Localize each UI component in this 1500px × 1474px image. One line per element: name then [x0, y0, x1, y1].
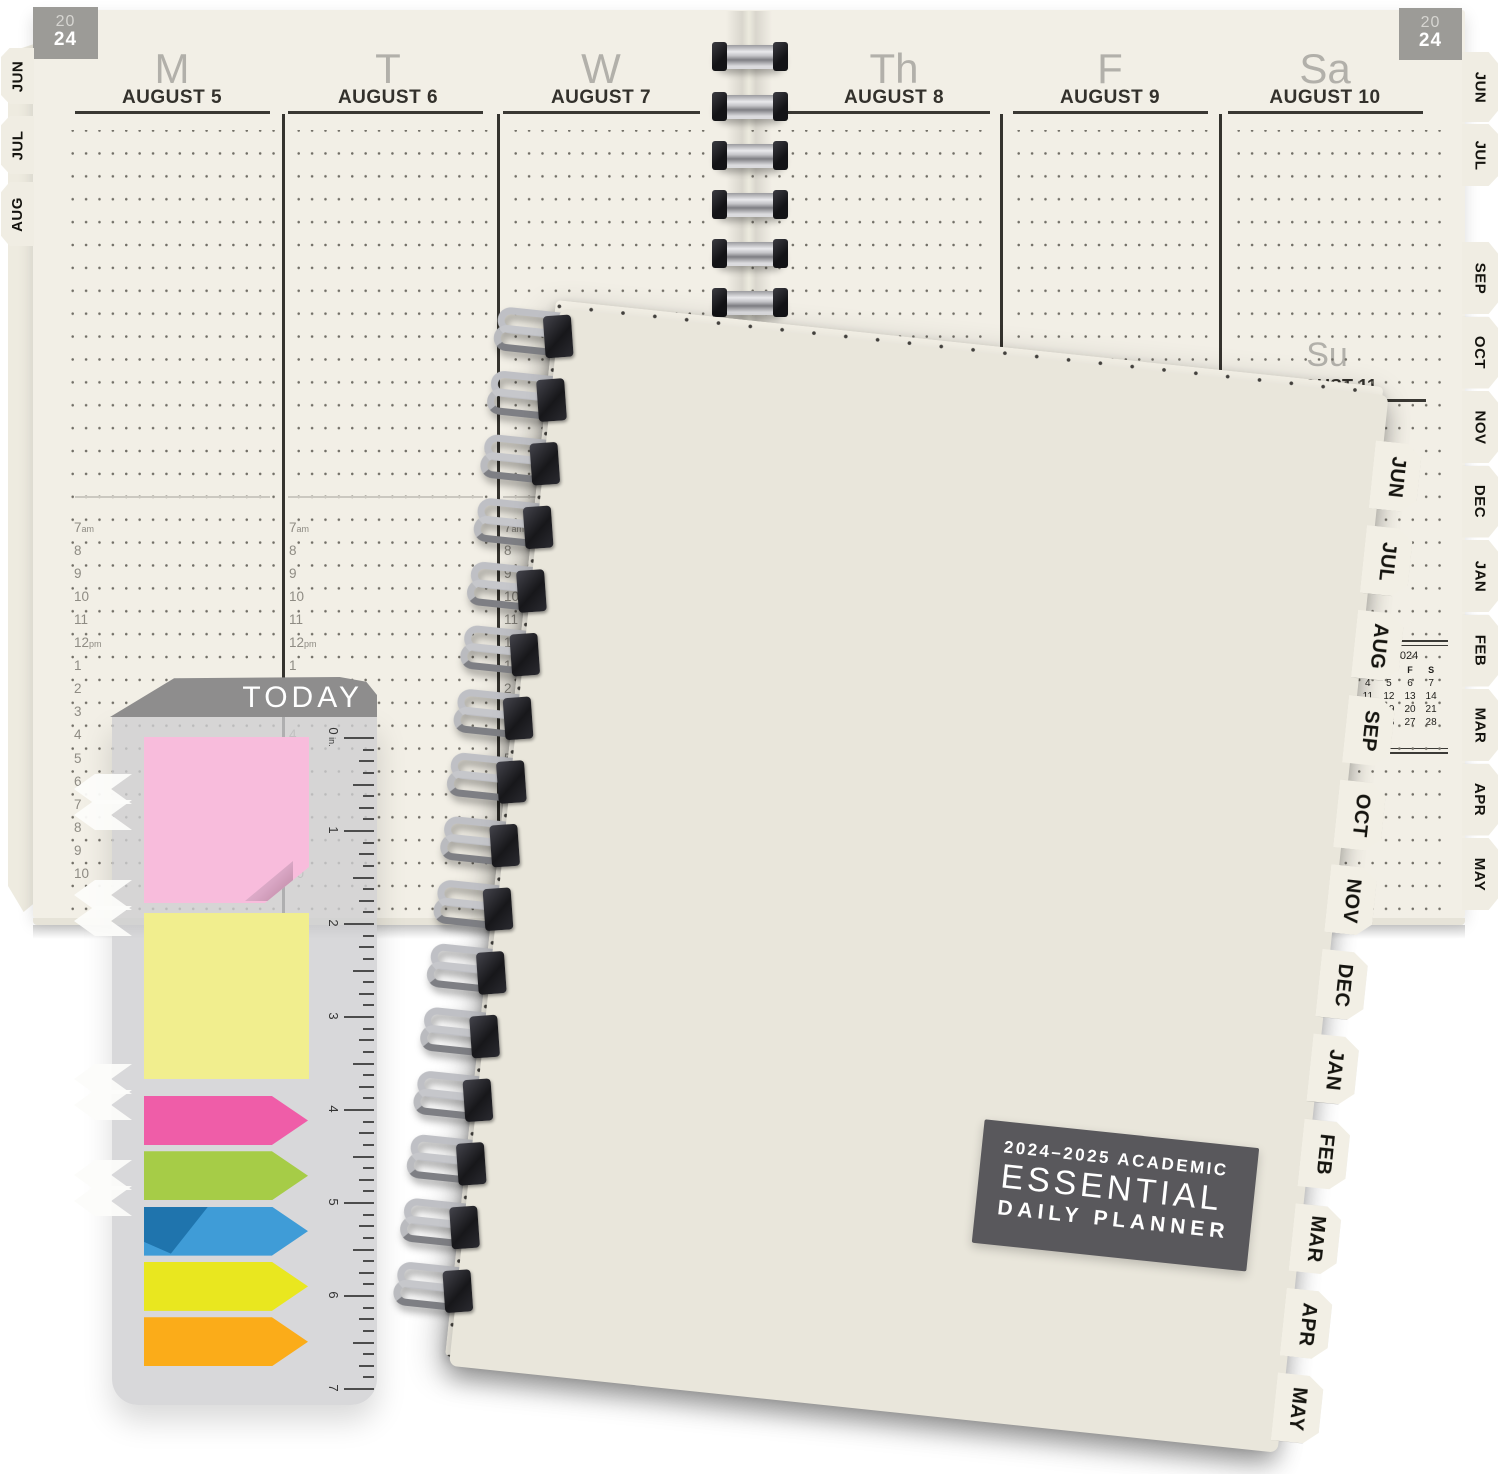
- day-letter: T: [328, 46, 448, 92]
- pack-banner: TODAY: [110, 677, 377, 717]
- notebook-tab-sep: SEP: [1342, 695, 1396, 768]
- month-tab-jul: JUL: [1462, 124, 1498, 186]
- year-tab-right: 20 24: [1399, 8, 1462, 60]
- time-label: 3: [74, 704, 114, 720]
- banner-label: TODAY: [242, 681, 363, 715]
- ruler-tick: [363, 888, 374, 890]
- ruler-tick: [359, 1132, 374, 1134]
- time-label: 9: [289, 566, 329, 582]
- ruler-tick: [359, 1039, 374, 1041]
- year-top-digits: 20: [1399, 14, 1462, 31]
- ruler-tick: [353, 1249, 374, 1251]
- day-header-underline: [288, 111, 483, 114]
- day-letter: M: [112, 46, 232, 92]
- month-tab-jun: JUN: [1462, 52, 1498, 122]
- ruler-tick: [363, 1028, 374, 1030]
- ruler-number: 1: [325, 808, 341, 852]
- time-label: 12pm: [289, 635, 329, 651]
- ruler-tick: [353, 1063, 374, 1065]
- time-label: 10: [74, 589, 114, 605]
- ruler-tick: [363, 1051, 374, 1053]
- ruler-tick: [344, 923, 374, 925]
- binding-coil-clamp: [536, 378, 567, 422]
- time-label: 4: [74, 727, 114, 743]
- time-label: 7am: [289, 520, 329, 536]
- time-label: 7am: [74, 520, 114, 536]
- binding-coil-clamp: [449, 1206, 480, 1250]
- ruler-number: 6: [325, 1273, 341, 1317]
- ruler-tick: [363, 772, 374, 774]
- ruler-tick: [363, 981, 374, 983]
- month-tab-nov: NOV: [1462, 391, 1498, 463]
- ruler-tick: [363, 1353, 374, 1355]
- ruler-tick: [363, 1004, 374, 1006]
- notebook-tab-dec: DEC: [1315, 949, 1369, 1022]
- schedule-divider: [288, 496, 483, 498]
- ruler-tick: [363, 1074, 374, 1076]
- ruler-tick: [344, 737, 374, 739]
- day-header-underline: [503, 111, 700, 114]
- ruler-tick: [359, 900, 374, 902]
- time-label: 12pm: [74, 635, 114, 651]
- notebook-tab-mar: MAR: [1289, 1203, 1343, 1276]
- ruler-number: 2: [325, 901, 341, 945]
- day-date: AUGUST 6: [298, 87, 478, 109]
- month-tab-oct: OCT: [1462, 317, 1498, 389]
- day-date: AUGUST 10: [1235, 87, 1415, 109]
- ruler-tick: [363, 1144, 374, 1146]
- time-label: 1: [74, 658, 114, 674]
- spiral-coil: [715, 144, 785, 168]
- ruler-number: 4: [325, 1087, 341, 1131]
- ruler-tick: [363, 1330, 374, 1332]
- ruler-number: 3: [325, 994, 341, 1038]
- time-label: 1: [289, 658, 329, 674]
- ruler-tick: [359, 1086, 374, 1088]
- day-header-underline: [1013, 111, 1208, 114]
- binding-coil-clamp: [456, 1142, 487, 1186]
- notebook-tab-feb: FEB: [1297, 1118, 1351, 1191]
- day-header-underline: [75, 111, 270, 114]
- time-label: 8: [74, 543, 114, 559]
- flag-corner-fold: [144, 1207, 208, 1256]
- day-letter: W: [541, 46, 661, 92]
- notebook-tab-apr: APR: [1280, 1288, 1334, 1361]
- ruler-tick: [359, 807, 374, 809]
- time-label: 8: [289, 543, 329, 559]
- month-tab-mar: MAR: [1462, 689, 1498, 761]
- ruler-tick: [359, 1179, 374, 1181]
- ruler-number: 5: [325, 1180, 341, 1224]
- day-date: AUGUST 9: [1020, 87, 1200, 109]
- notebook-tab-aug: AUG: [1351, 610, 1405, 683]
- ruler-tick: [359, 1318, 374, 1320]
- day-date: AUGUST 5: [82, 87, 262, 109]
- day-letter: Sa: [1265, 46, 1385, 92]
- ruler-tick: [363, 1190, 374, 1192]
- ruler-tick: [363, 1376, 374, 1378]
- binding-coil-clamp: [523, 505, 554, 549]
- planner-product-photo: 20 24 20 24 Su AUGUST 11 SEPTEMBER 2024 …: [0, 0, 1500, 1474]
- month-tab-jun: JUN: [1, 48, 34, 104]
- ruler-tick: [344, 830, 374, 832]
- ruler-tick: [344, 1388, 374, 1390]
- spiral-coil: [715, 95, 785, 119]
- notebook-tab-jul: JUL: [1360, 525, 1414, 598]
- spiral-coil: [715, 193, 785, 217]
- spiral-coil: [715, 291, 785, 315]
- ruler-tick: [363, 1307, 374, 1309]
- binding-coil-clamp: [469, 1015, 500, 1059]
- time-label: 10: [74, 866, 114, 882]
- binding-coil-clamp: [509, 633, 540, 677]
- ruler-tick: [359, 946, 374, 948]
- binding-coil-clamp: [476, 951, 507, 995]
- ruler-tick: [359, 1365, 374, 1367]
- day-header-underline: [1228, 111, 1423, 114]
- month-tab-jan: JAN: [1462, 540, 1498, 612]
- ruler-tick: [353, 877, 374, 879]
- ruler-tick: [363, 911, 374, 913]
- ruler-tick: [363, 749, 374, 751]
- left-page-stack-edge: [8, 44, 34, 912]
- binding-coil-clamp: [489, 824, 520, 868]
- ruler-tick: [363, 795, 374, 797]
- binding-coil-clamp: [516, 569, 547, 613]
- ruler-number: 7: [325, 1366, 341, 1410]
- cover-label: 2024–2025 ACADEMIC ESSENTIAL DAILY PLANN…: [972, 1119, 1259, 1271]
- ruler-tick: [359, 760, 374, 762]
- ruler-tick: [363, 1167, 374, 1169]
- notebook-tab-oct: OCT: [1333, 779, 1387, 852]
- time-label: 9: [74, 566, 114, 582]
- month-tab-dec: DEC: [1462, 466, 1498, 538]
- ruler-tick: [363, 1283, 374, 1285]
- binding-coil-clamp: [503, 696, 534, 740]
- ruler-tick: [363, 1097, 374, 1099]
- time-label: 2: [74, 681, 114, 697]
- sticky-note-pink: [144, 737, 309, 903]
- ruler-tick: [344, 1109, 374, 1111]
- ruler-tick: [363, 935, 374, 937]
- day-letter: F: [1050, 46, 1170, 92]
- ruler-tick: [359, 853, 374, 855]
- year-top-digits: 20: [33, 13, 98, 30]
- ruler-tick: [359, 1225, 374, 1227]
- ruler-tick: [363, 818, 374, 820]
- schedule-divider: [75, 496, 270, 498]
- notebook-tab-jan: JAN: [1306, 1034, 1360, 1107]
- time-label: 9: [74, 843, 114, 859]
- ruler-tick: [359, 1272, 374, 1274]
- year-bottom-digits: 24: [1399, 31, 1462, 51]
- month-tab-may: MAY: [1462, 838, 1498, 910]
- ruler-tick: [363, 1121, 374, 1123]
- binding-coil-clamp: [496, 760, 527, 804]
- ruler-tick: [344, 1202, 374, 1204]
- year-tab-left: 20 24: [33, 7, 98, 59]
- sticky-note-pack: TODAY 0 in.1234567: [110, 677, 377, 1405]
- spiral-coil: [715, 242, 785, 266]
- ruler-tick: [363, 1237, 374, 1239]
- ruler-tick: [353, 1342, 374, 1344]
- ruler-tick: [359, 993, 374, 995]
- ruler-tick: [363, 842, 374, 844]
- month-tab-aug: AUG: [1, 182, 34, 246]
- year-bottom-digits: 24: [33, 30, 98, 50]
- ruler-tick: [363, 865, 374, 867]
- notebook-tab-may: MAY: [1271, 1373, 1325, 1446]
- binding-coil-clamp: [483, 887, 514, 931]
- time-label: 10: [289, 589, 329, 605]
- ruler-tick: [353, 784, 374, 786]
- month-tab-feb: FEB: [1462, 615, 1498, 687]
- ruler-tick: [363, 1260, 374, 1262]
- ruler-tick: [353, 970, 374, 972]
- sticky-note-yellow: [144, 913, 309, 1079]
- notebook-tab-nov: NOV: [1324, 864, 1378, 937]
- ruler-tick: [363, 958, 374, 960]
- ruler-tick: [363, 1214, 374, 1216]
- day-date: AUGUST 8: [804, 87, 984, 109]
- time-label: 5: [74, 751, 114, 767]
- ruler-tick: [353, 1156, 374, 1158]
- day-letter: Th: [834, 46, 954, 92]
- month-tab-apr: APR: [1462, 764, 1498, 836]
- binding-coil-clamp: [529, 442, 560, 486]
- binding-coil-clamp: [442, 1269, 473, 1313]
- month-tab-jul: JUL: [1, 116, 34, 174]
- day-date: AUGUST 7: [511, 87, 691, 109]
- daily-planner-notebook: 2024–2025 ACADEMIC ESSENTIAL DAILY PLANN…: [445, 300, 1383, 1443]
- binding-coil-clamp: [543, 315, 574, 359]
- ruler-tick: [344, 1295, 374, 1297]
- notebook-tab-jun: JUN: [1369, 440, 1423, 513]
- month-tab-sep: SEP: [1462, 242, 1498, 314]
- time-label: 11: [74, 612, 114, 628]
- ruler-tick: [344, 1016, 374, 1018]
- binding-coil-clamp: [462, 1078, 493, 1122]
- time-label: 11: [289, 612, 329, 628]
- spiral-coil: [715, 45, 785, 69]
- ruler-number: 0 in.: [325, 715, 341, 759]
